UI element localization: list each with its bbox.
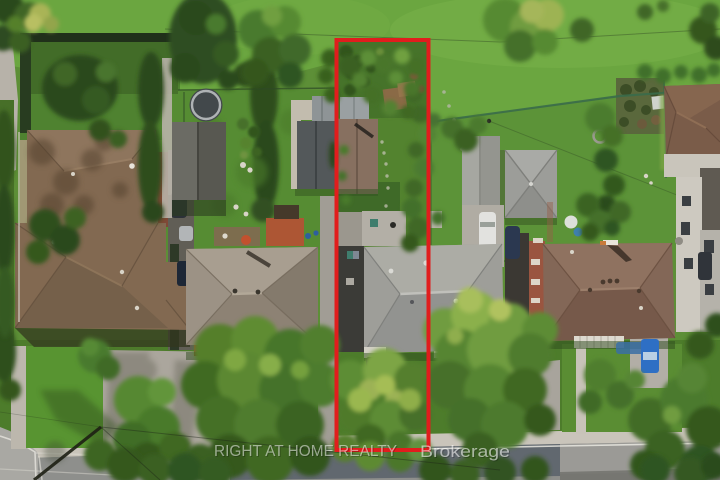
svg-text:Brokerage: Brokerage xyxy=(420,442,510,461)
svg-text:RIGHT AT HOME REALTY: RIGHT AT HOME REALTY xyxy=(214,443,397,460)
